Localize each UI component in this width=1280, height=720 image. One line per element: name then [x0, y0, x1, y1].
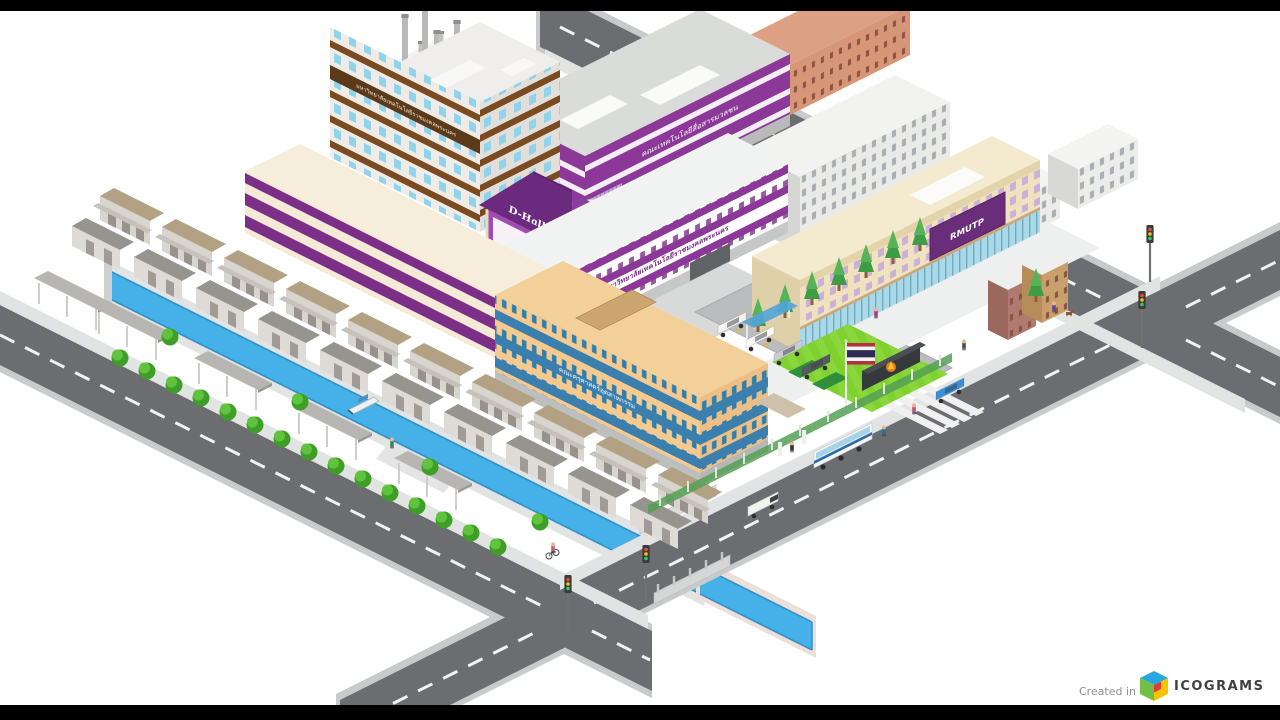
- letterbox-top: [0, 0, 1280, 11]
- traffic-light-icon: [1146, 225, 1153, 282]
- icograms-logo-icon: [1140, 671, 1168, 701]
- brand-label: ICOGRAMS: [1174, 679, 1264, 694]
- gate-pillar: [802, 430, 806, 444]
- video-frame: คณะเทคโนโลยีสื่อสารมวลชน มหาวิทยาลัยเทคโ…: [0, 0, 1280, 720]
- campus-map-illustration: คณะเทคโนโลยีสื่อสารมวลชน มหาวิทยาลัยเทคโ…: [0, 0, 1280, 720]
- gate-pillar: [778, 442, 782, 456]
- building-warehouse-small: [1048, 124, 1138, 209]
- letterbox-bottom: [0, 705, 1280, 720]
- created-in-label: Created in: [1079, 685, 1136, 698]
- cyclist: [546, 542, 559, 559]
- watermark: Created in ICOGRAMS: [1079, 671, 1265, 701]
